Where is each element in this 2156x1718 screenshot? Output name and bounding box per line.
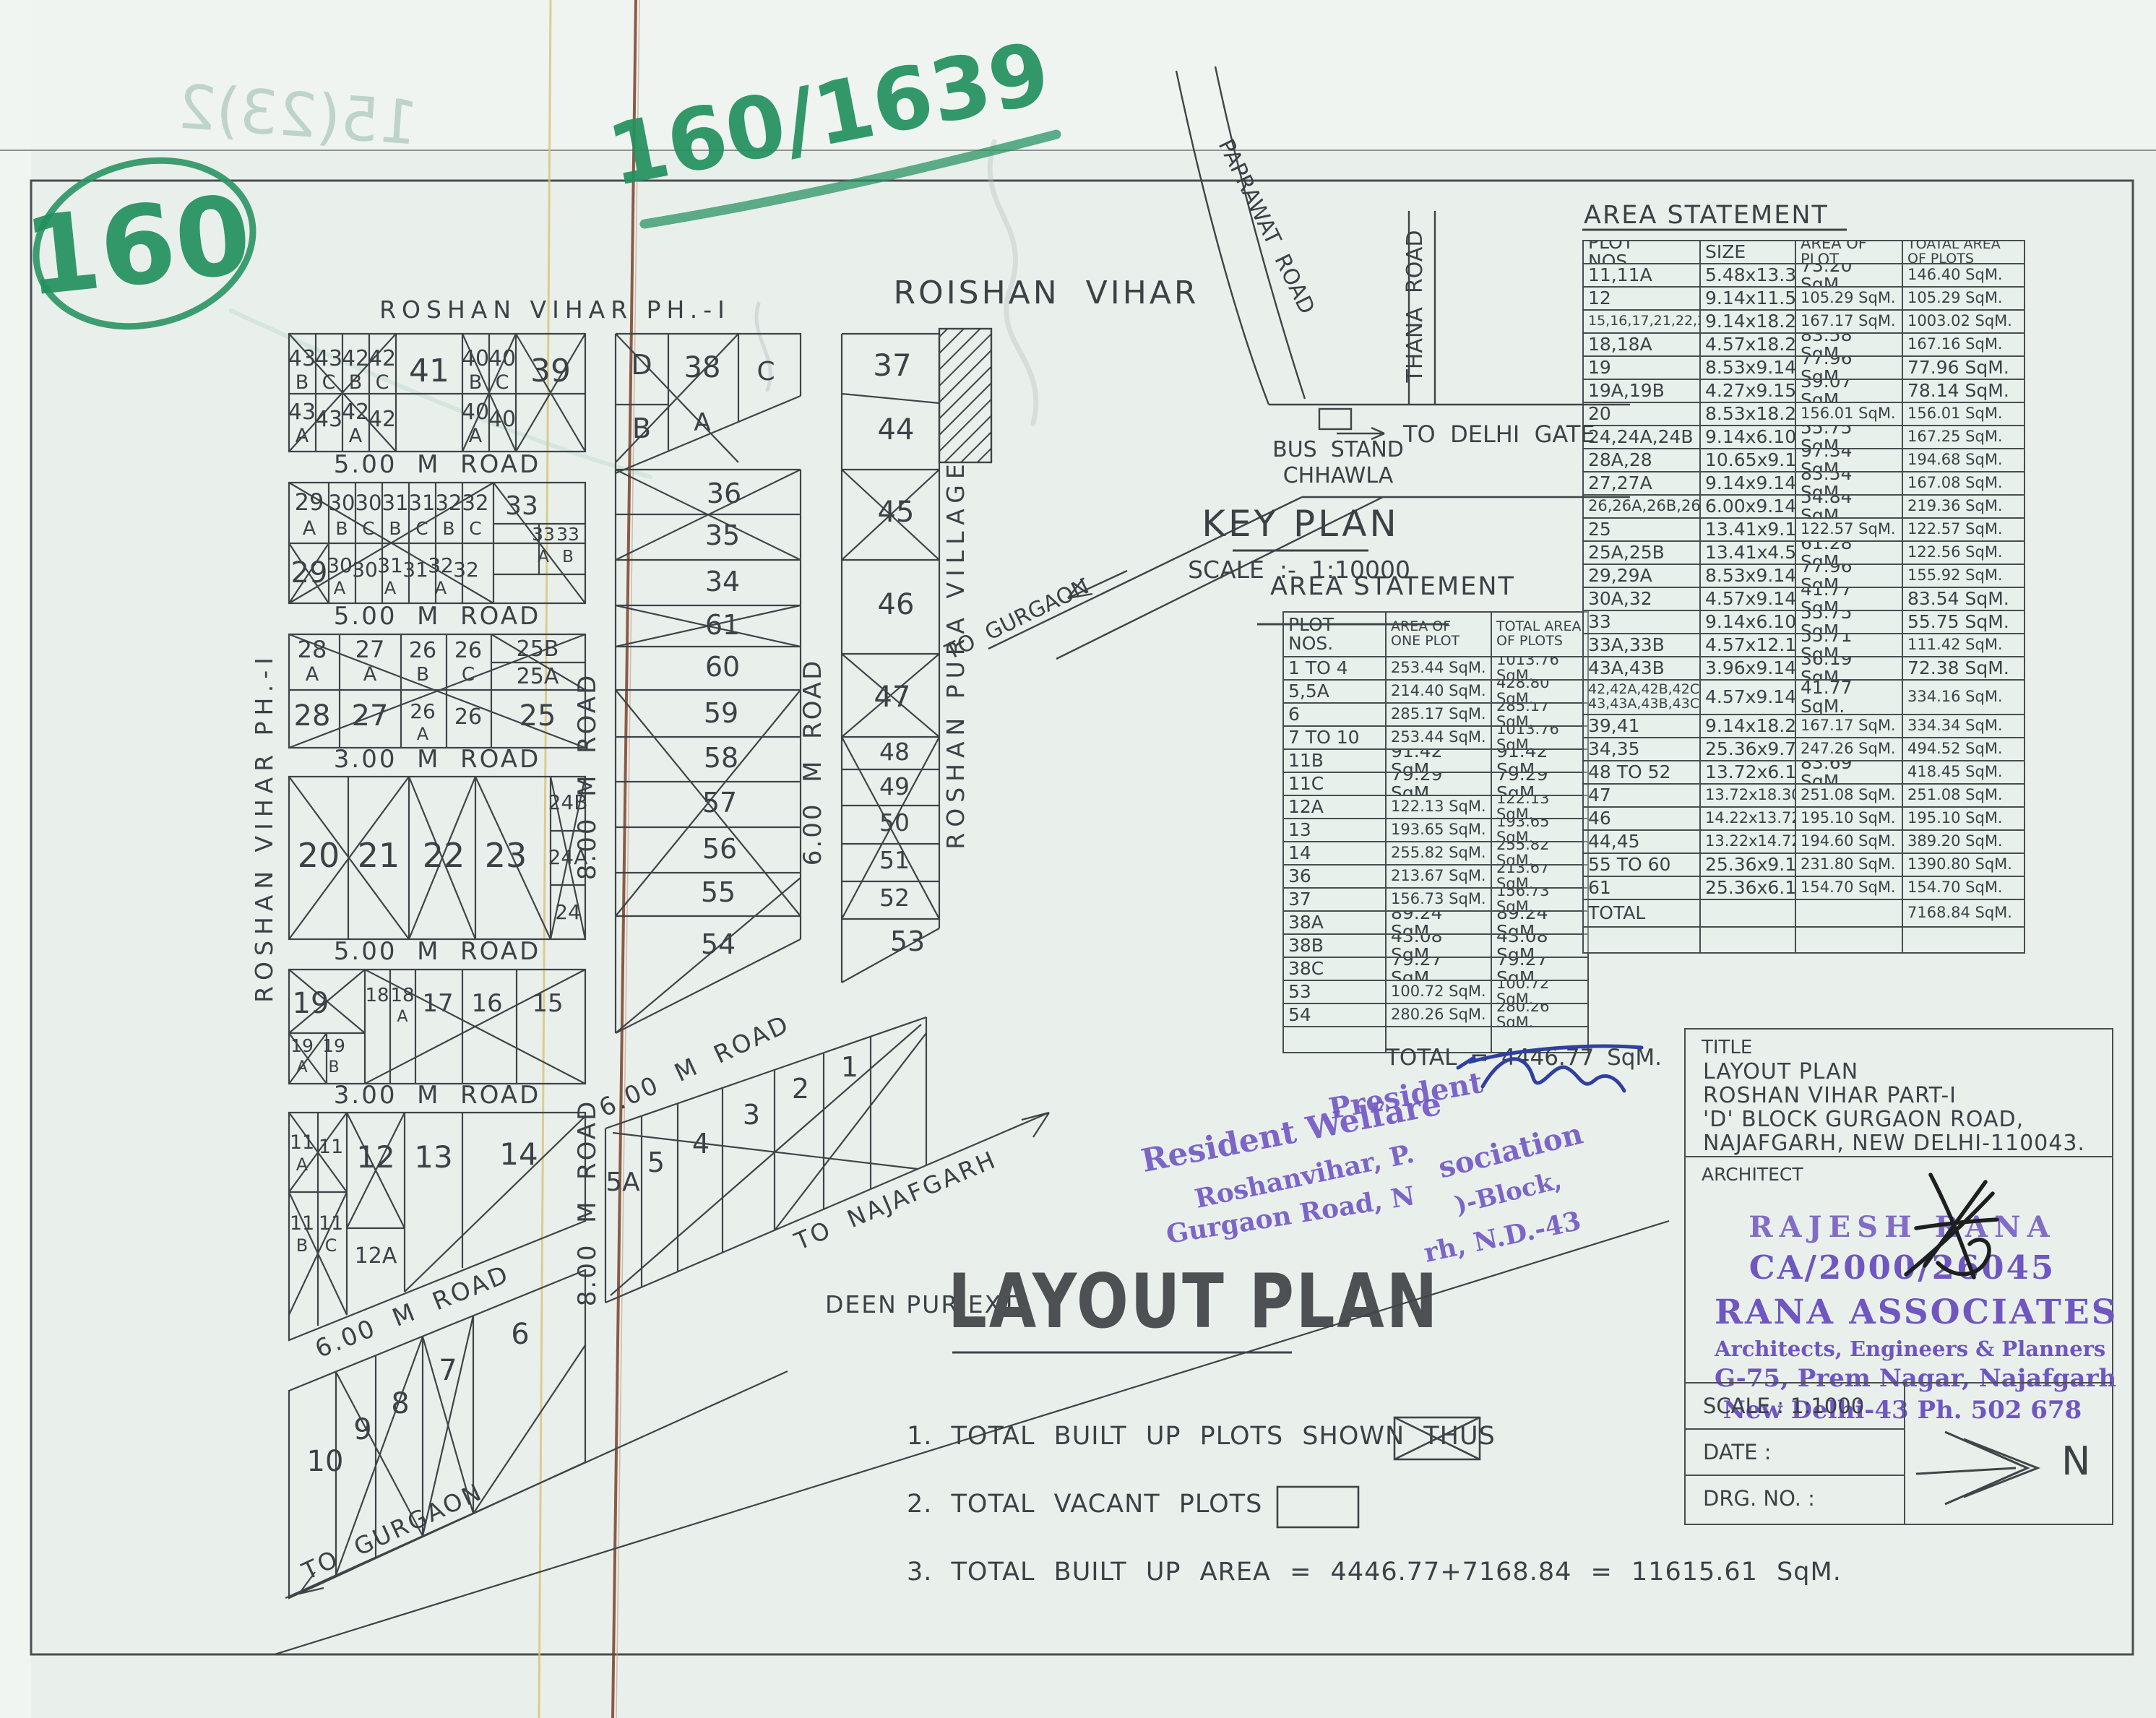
table-cell: 89.24 SqM. (1385, 912, 1491, 933)
table-cell: 36.19 SqM. (1795, 657, 1902, 679)
table-row: 13193.65 SqM.193.65 SqM. (1284, 818, 1587, 841)
table-cell: 6.00x9.14 (1699, 496, 1795, 517)
table-cell: 13.72x6.10 (1699, 761, 1795, 783)
table-cell: 155.92 SqM. (1902, 565, 2024, 587)
table-row: 208.53x18.29156.01 SqM.156.01 SqM. (1584, 402, 2024, 425)
table-cell: 47 (1584, 785, 1699, 806)
table-cell: PLOT NOS. (1584, 241, 1699, 263)
table-row: 6125.36x6.10154.70 SqM.154.70 SqM. (1584, 876, 2024, 899)
table-cell: 79.27 SqM. (1491, 958, 1587, 980)
table-cell: 418.45 SqM. (1902, 761, 2024, 783)
table-row: 26,26A,26B,26C6.00x9.1454.84 SqM.219.36 … (1584, 494, 2024, 517)
table-cell: 28A,28 (1584, 449, 1699, 471)
table-cell (1902, 928, 2024, 952)
table-cell: 167.16 SqM. (1902, 334, 2024, 355)
table-cell: 54 (1284, 1004, 1385, 1026)
table-cell: 55.75 SqM. (1795, 611, 1902, 633)
table-cell: 1390.80 SqM. (1902, 854, 2024, 876)
table-cell: 61 (1584, 877, 1699, 899)
table-cell: 25A,25B (1584, 542, 1699, 564)
date-row: DATE : (1686, 1430, 1904, 1476)
table-cell: 78.14 SqM. (1902, 380, 2024, 402)
table-row: 11,11A5.48x13.3673.20 SqM.146.40 SqM. (1584, 263, 2024, 286)
table-cell: 1 TO 4 (1284, 657, 1385, 679)
table-cell: 11B (1284, 750, 1385, 772)
table-cell: 7168.84 SqM. (1902, 900, 2024, 926)
table-row: 39,419.14x18.29167.17 SqM.334.34 SqM. (1584, 714, 2024, 737)
table-row: 14255.82 SqM.255.82 SqM. (1284, 841, 1587, 864)
table-cell (1795, 928, 1902, 952)
table-cell: 1013.76 SqM. (1491, 657, 1587, 679)
table-row: 19A,19B4.27x9.1539.07 SqM.78.14 SqM. (1584, 379, 2024, 402)
area-statement-mid-table: PLOT NOS.AREA OF ONE PLOTTOTAL AREA OF P… (1282, 611, 1589, 1053)
table-row: 30A,324.57x9.1441.77 SqM.83.54 SqM. (1584, 587, 2024, 610)
table-cell: 14.22x13.72 (1699, 808, 1795, 829)
area-statement-mid-total: TOTAL = 4446.77 SqM. (1386, 1045, 1662, 1071)
table-cell: 55 TO 60 (1584, 854, 1699, 876)
table-cell: 156.73 SqM. (1385, 889, 1491, 910)
table-cell: 89.24 SqM. (1491, 912, 1587, 933)
table-cell: 38C (1284, 958, 1385, 980)
table-cell: 167.17 SqM. (1795, 311, 1902, 332)
table-cell: SIZE (1699, 241, 1795, 263)
table-cell: 156.73 SqM. (1491, 889, 1587, 910)
table-cell (1699, 900, 1795, 926)
list-item: LAYOUT PLAN (1703, 1060, 2085, 1084)
table-cell: 4.57x12.19 (1699, 634, 1795, 656)
table-cell: 231.80 SqM. (1795, 854, 1902, 876)
table-cell: 43.08 SqM. (1491, 935, 1587, 957)
table-cell: 53 (1284, 981, 1385, 1003)
table-cell: 12A (1284, 796, 1385, 818)
table-cell (1699, 928, 1795, 952)
table-cell: 8.53x18.29 (1699, 403, 1795, 425)
table-cell: 91.42 SqM. (1491, 750, 1587, 772)
legend-item-vacant: 2. TOTAL VACANT PLOTS (907, 1490, 1262, 1519)
table-cell: 43.08 SqM. (1385, 935, 1491, 957)
table-cell: 83.69 SqM. (1795, 761, 1902, 783)
table-cell: 25.36x9.14 (1699, 854, 1795, 876)
table-row: 129.14x11.52105.29 SqM.105.29 SqM. (1584, 286, 2024, 309)
table-cell: 167.08 SqM. (1902, 472, 2024, 494)
table-row: 34,3525.36x9.75247.26 SqM.494.52 SqM. (1584, 737, 2024, 760)
table-cell: 11,11A (1584, 264, 1699, 286)
table-cell: 97.34 SqM. (1795, 449, 1902, 471)
table-cell: 83.58 SqM. (1795, 334, 1902, 355)
table-cell: 494.52 SqM. (1902, 738, 2024, 760)
table-cell: 194.60 SqM. (1795, 831, 1902, 852)
table-row: 29,29A8.53x9.1477.96 SqM.155.92 SqM. (1584, 564, 2024, 587)
table-cell: 213.67 SqM. (1385, 866, 1491, 887)
table-cell: 12 (1584, 288, 1699, 309)
title-block-title-cell: TITLE LAYOUT PLANROSHAN VIHAR PART-I'D' … (1686, 1029, 2112, 1157)
table-cell (1584, 928, 1699, 952)
table-row: 339.14x6.1055.75 SqM.55.75 SqM. (1584, 610, 2024, 633)
table-cell: 1013.76 SqM. (1491, 727, 1587, 748)
table-row: 38A89.24 SqM.89.24 SqM. (1284, 910, 1587, 933)
table-cell: 91.42 SqM. (1385, 750, 1491, 772)
list-item: ROSHAN VIHAR PART-I (1703, 1084, 2085, 1108)
list-item: NAJAFGARH, NEW DELHI-110043. (1703, 1131, 2085, 1155)
north-letter: N (2061, 1438, 2090, 1484)
table-row (1584, 926, 2024, 952)
table-cell: 285.17 SqM. (1385, 704, 1491, 725)
table-cell (1795, 900, 1902, 926)
table-cell: 36 (1284, 866, 1385, 887)
table-cell: 122.57 SqM. (1795, 519, 1902, 540)
table-row: 11C79.29 SqM.79.29 SqM. (1284, 772, 1587, 795)
table-cell: 79.29 SqM. (1385, 773, 1491, 795)
table-cell: 37 (1284, 889, 1385, 910)
table-row: 36213.67 SqM.213.67 SqM. (1284, 864, 1587, 887)
table-row: 12A122.13 SqM.122.13 SqM. (1284, 795, 1587, 818)
area-statement-right-table: PLOT NOS.SIZEAREA OF PLOTTOATAL AREA OF … (1582, 240, 2025, 954)
table-row: 48 TO 5213.72x6.1083.69 SqM.418.45 SqM. (1584, 760, 2024, 783)
title-block: TITLE LAYOUT PLANROSHAN VIHAR PART-I'D' … (1684, 1028, 2113, 1525)
table-cell: 253.44 SqM. (1385, 727, 1491, 748)
table-cell: 9.14x18.29 (1699, 715, 1795, 737)
table-cell: 334.16 SqM. (1902, 681, 2024, 714)
table-row: 27,27A9.14x9.1483.54 SqM.167.08 SqM. (1584, 471, 2024, 494)
table-row: 37156.73 SqM.156.73 SqM. (1284, 887, 1587, 910)
table-cell: 26,26A,26B,26C (1584, 496, 1699, 517)
table-cell: 83.54 SqM. (1902, 588, 2024, 610)
area-statement-mid-title: AREA STATEMENT (1270, 572, 1515, 601)
table-cell: 8.53x9.14 (1699, 357, 1795, 379)
table-cell: 6 (1284, 704, 1385, 725)
table-row: 198.53x9.1477.96 SqM.77.96 SqM. (1584, 355, 2024, 379)
table-cell: 13.22x14.72 (1699, 831, 1795, 852)
table-row: 11B91.42 SqM.91.42 SqM. (1284, 748, 1587, 772)
table-cell: 193.65 SqM. (1385, 819, 1491, 841)
table-row: 4713.72x18.30251.08 SqM.251.08 SqM. (1584, 783, 2024, 806)
table-cell: 42,42A,42B,42C, 43,43A,43B,43C (1584, 681, 1699, 714)
table-cell: 194.68 SqM. (1902, 449, 2024, 471)
table-cell: 9.14x11.52 (1699, 288, 1795, 309)
table-cell: 55.75 SqM. (1902, 611, 2024, 633)
table-cell: 167.25 SqM. (1902, 426, 2024, 448)
table-cell: AREA OF ONE PLOT (1385, 613, 1491, 656)
table-cell: 7 TO 10 (1284, 727, 1385, 748)
table-cell: 25 (1584, 519, 1699, 540)
table-cell: 72.38 SqM. (1902, 657, 2024, 679)
table-cell: 30A,32 (1584, 588, 1699, 610)
table-cell: 11C (1284, 773, 1385, 795)
table-cell: 25.36x6.10 (1699, 877, 1795, 899)
table-row: 24,24A,24B9.14x6.1055.75 SqM.167.25 SqM. (1584, 425, 2024, 448)
table-row: 2513.41x9.14122.57 SqM.122.57 SqM. (1584, 517, 2024, 540)
table-cell: 253.44 SqM. (1385, 657, 1491, 679)
table-cell: 255.82 SqM. (1385, 842, 1491, 864)
table-cell: 39.07 SqM. (1795, 380, 1902, 402)
list-item: RANA ASSOCIATES (1715, 1292, 2090, 1332)
table-cell: TOTAL (1584, 900, 1699, 926)
table-row: 15,16,17,21,22,239.14x18.29167.17 SqM.10… (1584, 309, 2024, 332)
table-cell: 73.20 SqM. (1795, 264, 1902, 286)
table-cell: 54.84 SqM. (1795, 496, 1902, 517)
table-cell: 219.36 SqM. (1902, 496, 2024, 517)
table-cell: 389.20 SqM. (1902, 831, 2024, 852)
table-cell: 29,29A (1584, 565, 1699, 587)
table-cell: 9.14x6.10 (1699, 426, 1795, 448)
table-cell: 280.26 SqM. (1385, 1004, 1491, 1026)
title-block-grid: SCALE : 1:1000 DATE : DRG. NO. : N (1686, 1382, 2112, 1524)
table-cell: 43A,43B (1584, 657, 1699, 679)
table-cell: 4.57x9.14 (1699, 588, 1795, 610)
table-cell (1284, 1027, 1385, 1052)
table-cell: 18,18A (1584, 334, 1699, 355)
table-cell: 13.72x18.30 (1699, 785, 1795, 806)
table-cell: 334.34 SqM. (1902, 715, 2024, 737)
table-row: 38B43.08 SqM.43.08 SqM. (1284, 933, 1587, 957)
table-cell: 156.01 SqM. (1902, 403, 2024, 425)
table-cell: 285.17 SqM. (1491, 704, 1587, 725)
legend-title: LAYOUT PLAN (948, 1259, 1439, 1345)
table-cell: AREA OF PLOT (1795, 241, 1902, 263)
table-cell: TOATAL AREA OF PLOTS (1902, 241, 2024, 263)
table-cell: 39,41 (1584, 715, 1699, 737)
table-cell: 247.26 SqM. (1795, 738, 1902, 760)
table-cell: 34,35 (1584, 738, 1699, 760)
table-row: 53100.72 SqM.100.72 SqM. (1284, 980, 1587, 1003)
table-row: 28A,2810.65x9.1497.34 SqM.194.68 SqM. (1584, 448, 2024, 471)
table-cell: 38A (1284, 912, 1385, 933)
table-cell: 4.57x18.29 (1699, 334, 1795, 355)
table-cell: 25.36x9.75 (1699, 738, 1795, 760)
table-cell: 255.82 SqM. (1491, 842, 1587, 864)
table-row: 42,42A,42B,42C, 43,43A,43B,43C4.57x9.144… (1584, 679, 2024, 714)
table-cell: 61.28 SqM. (1795, 542, 1902, 564)
table-cell: 33A,33B (1584, 634, 1699, 656)
table-cell: 41.77 SqM. (1795, 681, 1902, 714)
table-cell: 156.01 SqM. (1795, 403, 1902, 425)
table-cell: 8.53x9.14 (1699, 565, 1795, 587)
table-cell: 154.70 SqM. (1902, 877, 2024, 899)
table-cell: 251.08 SqM. (1902, 785, 2024, 806)
table-cell: 9.14x9.14 (1699, 472, 1795, 494)
table-cell: 77.96 SqM. (1795, 357, 1902, 379)
table-cell: 213.67 SqM. (1491, 866, 1587, 887)
table-cell: 122.57 SqM. (1902, 519, 2024, 540)
table-row: PLOT NOS.SIZEAREA OF PLOTTOATAL AREA OF … (1584, 241, 2024, 263)
table-cell: 193.65 SqM. (1491, 819, 1587, 841)
table-row: PLOT NOS.AREA OF ONE PLOTTOTAL AREA OF P… (1284, 613, 1587, 656)
scale-row: SCALE : 1:1000 (1686, 1384, 1904, 1430)
list-item: Architects, Engineers & Planners (1715, 1337, 2090, 1361)
title-lines: LAYOUT PLANROSHAN VIHAR PART-I'D' BLOCK … (1703, 1060, 2085, 1155)
table-cell: 33 (1584, 611, 1699, 633)
table-cell: 44,45 (1584, 831, 1699, 852)
table-cell: 154.70 SqM. (1795, 877, 1902, 899)
list-item: 'D' BLOCK GURGAON ROAD, (1703, 1108, 2085, 1131)
table-cell: TOTAL AREA OF PLOTS (1491, 613, 1587, 656)
title-label: TITLE (1702, 1037, 1752, 1058)
table-cell: 428.80 SqM. (1491, 681, 1587, 702)
table-cell: 38B (1284, 935, 1385, 957)
grid-divider (1904, 1384, 1905, 1524)
table-cell: 280.26 SqM. (1491, 1004, 1587, 1026)
table-cell: 27,27A (1584, 472, 1699, 494)
table-row: 25A,25B13.41x4.5761.28 SqM.122.56 SqM. (1584, 540, 2024, 564)
scanned-layout-plan-sheet: { "page": { "bg": "#e9f0ec", "line_color… (0, 0, 2156, 1718)
table-cell: 48 TO 52 (1584, 761, 1699, 783)
table-row: 33A,33B4.57x12.1955.71 SqM.111.42 SqM. (1584, 633, 2024, 656)
table-cell: 122.56 SqM. (1902, 542, 2024, 564)
table-row: 44,4513.22x14.72194.60 SqM.389.20 SqM. (1584, 829, 2024, 852)
table-cell: 13.41x9.14 (1699, 519, 1795, 540)
table-cell: 19 (1584, 357, 1699, 379)
table-cell: 122.13 SqM. (1385, 796, 1491, 818)
table-row: 4614.22x13.72195.10 SqM.195.10 SqM. (1584, 806, 2024, 829)
table-cell: 55.71 SqM. (1795, 634, 1902, 656)
table-cell: 100.72 SqM. (1491, 981, 1587, 1003)
table-cell: 105.29 SqM. (1902, 288, 2024, 309)
table-cell: 195.10 SqM. (1795, 808, 1902, 829)
area-statement-right-title: AREA STATEMENT (1584, 201, 1829, 230)
table-cell: 105.29 SqM. (1795, 288, 1902, 309)
drg-row: DRG. NO. : (1686, 1476, 1904, 1524)
table-cell: 13.41x4.57 (1699, 542, 1795, 564)
table-cell: 46 (1584, 808, 1699, 829)
table-cell: 79.29 SqM. (1491, 773, 1587, 795)
table-cell: 14 (1284, 842, 1385, 864)
table-cell: 83.54 SqM. (1795, 472, 1902, 494)
table-cell: 214.40 SqM. (1385, 681, 1491, 702)
table-cell: 146.40 SqM. (1902, 264, 2024, 286)
table-cell: 111.42 SqM. (1902, 634, 2024, 656)
table-cell: 195.10 SqM. (1902, 808, 2024, 829)
table-cell: 77.96 SqM. (1902, 357, 2024, 379)
table-cell: 5,5A (1284, 681, 1385, 702)
table-cell: 19A,19B (1584, 380, 1699, 402)
table-cell: PLOT NOS. (1284, 613, 1385, 656)
table-row: 1 TO 4253.44 SqM.1013.76 SqM. (1284, 656, 1587, 679)
table-cell: 4.57x9.14 (1699, 681, 1795, 714)
list-item: CA/2000/26045 (1715, 1248, 2090, 1287)
table-cell: 251.08 SqM. (1795, 785, 1902, 806)
legend-item-area: 3. TOTAL BUILT UP AREA = 4446.77+7168.84… (907, 1558, 1842, 1587)
table-row: 54280.26 SqM.280.26 SqM. (1284, 1003, 1587, 1026)
table-cell: 10.65x9.14 (1699, 449, 1795, 471)
legend-item-builtup: 1. TOTAL BUILT UP PLOTS SHOWN THUS (907, 1422, 1496, 1451)
table-cell: 9.14x18.29 (1699, 311, 1795, 332)
table-cell: 41.77 SqM. (1795, 588, 1902, 610)
table-row: 43A,43B3.96x9.1436.19 SqM.72.38 SqM. (1584, 656, 2024, 679)
table-row: 18,18A4.57x18.2983.58 SqM.167.16 SqM. (1584, 332, 2024, 355)
table-cell: 15,16,17,21,22,23 (1584, 311, 1699, 332)
table-cell: 79.27 SqM. (1385, 958, 1491, 980)
table-cell: 3.96x9.14 (1699, 657, 1795, 679)
table-cell: 5.48x13.36 (1699, 264, 1795, 286)
table-cell: 1003.02 SqM. (1902, 311, 2024, 332)
list-item: RAJESH RANA (1715, 1210, 2090, 1244)
table-cell: 100.72 SqM. (1385, 981, 1491, 1003)
table-row: 5,5A214.40 SqM.428.80 SqM. (1284, 679, 1587, 702)
table-cell: 55.75 SqM. (1795, 426, 1902, 448)
table-row: 6285.17 SqM.285.17 SqM. (1284, 702, 1587, 725)
table-row: 7 TO 10253.44 SqM.1013.76 SqM. (1284, 725, 1587, 748)
table-cell: 13 (1284, 819, 1385, 841)
table-cell: 9.14x6.10 (1699, 611, 1795, 633)
table-cell: 122.13 SqM. (1491, 796, 1587, 818)
table-cell: 4.27x9.15 (1699, 380, 1795, 402)
table-row: 38C79.27 SqM.79.27 SqM. (1284, 957, 1587, 980)
table-row: TOTAL7168.84 SqM. (1584, 899, 2024, 926)
table-cell: 77.96 SqM. (1795, 565, 1902, 587)
table-row: 55 TO 6025.36x9.14231.80 SqM.1390.80 SqM… (1584, 852, 2024, 876)
table-cell: 167.17 SqM. (1795, 715, 1902, 737)
architect-label: ARCHITECT (1702, 1164, 1803, 1185)
table-cell: 20 (1584, 403, 1699, 425)
table-cell: 24,24A,24B (1584, 426, 1699, 448)
